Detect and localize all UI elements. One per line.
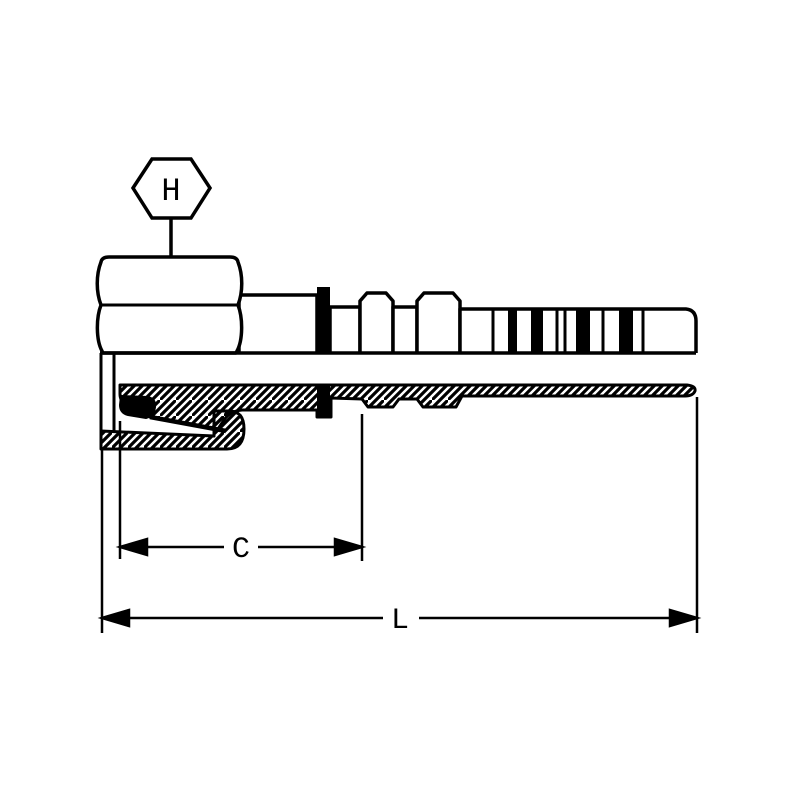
dim-c-label: C — [232, 533, 250, 567]
fitting-upper-profile — [97, 257, 696, 353]
hose-fitting-diagram: H — [0, 0, 800, 800]
oring-seal — [120, 396, 155, 418]
tube-wall-section — [120, 385, 695, 429]
dim-l-arrow-right — [670, 610, 697, 626]
crimp-block-2 — [417, 293, 460, 353]
stop-collar-upper — [317, 287, 330, 353]
dim-l-label: L — [391, 604, 409, 638]
body-groove-2 — [393, 307, 417, 353]
fitting-lower-section — [101, 353, 695, 449]
body-groove-1 — [330, 307, 360, 353]
crimp-block-1 — [360, 293, 393, 353]
dim-c-arrow-right — [335, 539, 362, 555]
drawing-canvas: H — [0, 0, 800, 800]
stop-collar-lower — [317, 384, 330, 417]
body-cylinder — [239, 295, 317, 353]
dimension-l — [102, 397, 697, 633]
dim-c-arrow-left — [120, 539, 147, 555]
dim-l-arrow-left — [102, 610, 129, 626]
hex-size-label: H — [161, 173, 180, 210]
